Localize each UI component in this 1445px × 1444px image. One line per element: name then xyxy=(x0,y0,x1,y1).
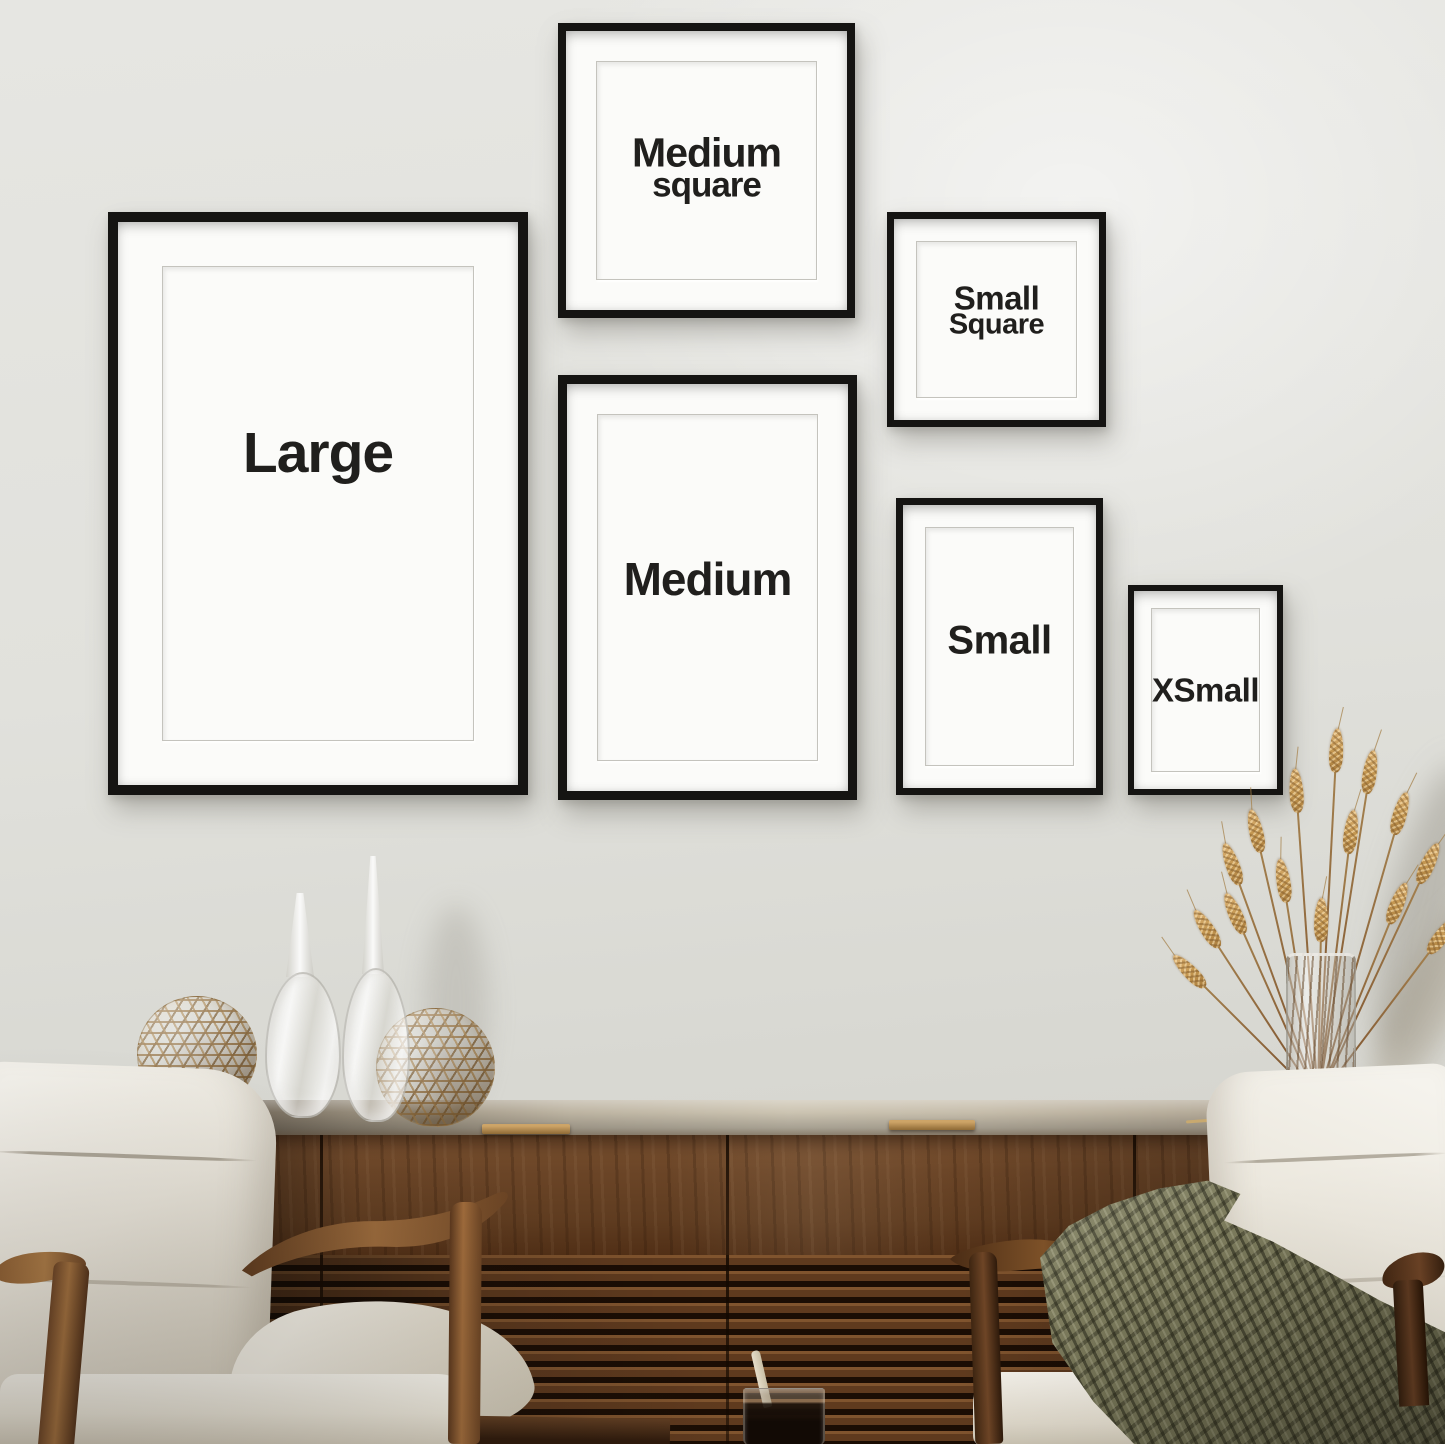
frame-mat: Medium square xyxy=(566,31,847,310)
frame-small: Small xyxy=(896,498,1103,795)
frame-size-label: Medium square xyxy=(566,134,847,201)
armchair-left-arm-post xyxy=(448,1202,482,1444)
frame-mat: Small Square xyxy=(894,219,1099,420)
frame-size-label: Small Square xyxy=(894,284,1099,339)
glass-vase xyxy=(342,968,410,1122)
living-room-scene: Large Medium square Small Square Medium xyxy=(0,0,1445,1444)
slat-seam xyxy=(726,1255,729,1444)
door-seam xyxy=(726,1135,729,1255)
frame-medium: Medium xyxy=(558,375,857,800)
frame-size-text: Small xyxy=(903,623,1096,658)
glass-vase xyxy=(265,972,341,1118)
frame-mat: XSmall xyxy=(1134,591,1277,789)
frame-size-text: Large xyxy=(118,428,518,478)
frame-medium-square: Medium square xyxy=(558,23,855,318)
frame-size-label: Large xyxy=(118,428,518,478)
frame-size-text-line2: square xyxy=(566,170,847,201)
frame-size-label: Small xyxy=(903,623,1096,658)
frame-small-square: Small Square xyxy=(887,212,1106,427)
frame-size-text: XSmall xyxy=(1134,675,1277,704)
frame-size-label: XSmall xyxy=(1134,675,1277,704)
frame-mat: Small xyxy=(903,505,1096,788)
drink-glass xyxy=(743,1388,825,1444)
glass-vase-neck xyxy=(286,893,314,977)
frame-large: Large xyxy=(108,212,528,795)
frame-xsmall: XSmall xyxy=(1128,585,1283,795)
frame-mat: Large xyxy=(118,222,518,785)
frame-size-text: Medium xyxy=(567,559,848,599)
glass-vase-neck xyxy=(362,856,384,974)
frame-mat: Medium xyxy=(567,384,848,791)
door-handle xyxy=(889,1120,975,1130)
door-handle xyxy=(482,1124,570,1134)
mat-bevel xyxy=(162,266,474,741)
frame-size-label: Medium xyxy=(567,559,848,599)
frame-size-text-line2: Square xyxy=(894,313,1099,339)
